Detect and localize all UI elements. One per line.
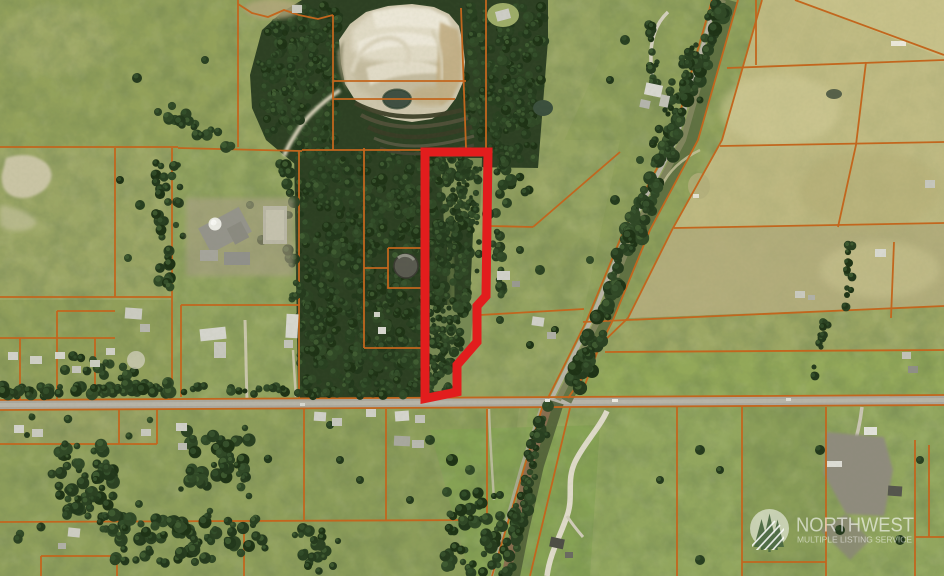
svg-text:MULTIPLE LISTING SERVICE: MULTIPLE LISTING SERVICE (797, 535, 912, 545)
svg-text:NORTHWEST: NORTHWEST (796, 514, 914, 537)
